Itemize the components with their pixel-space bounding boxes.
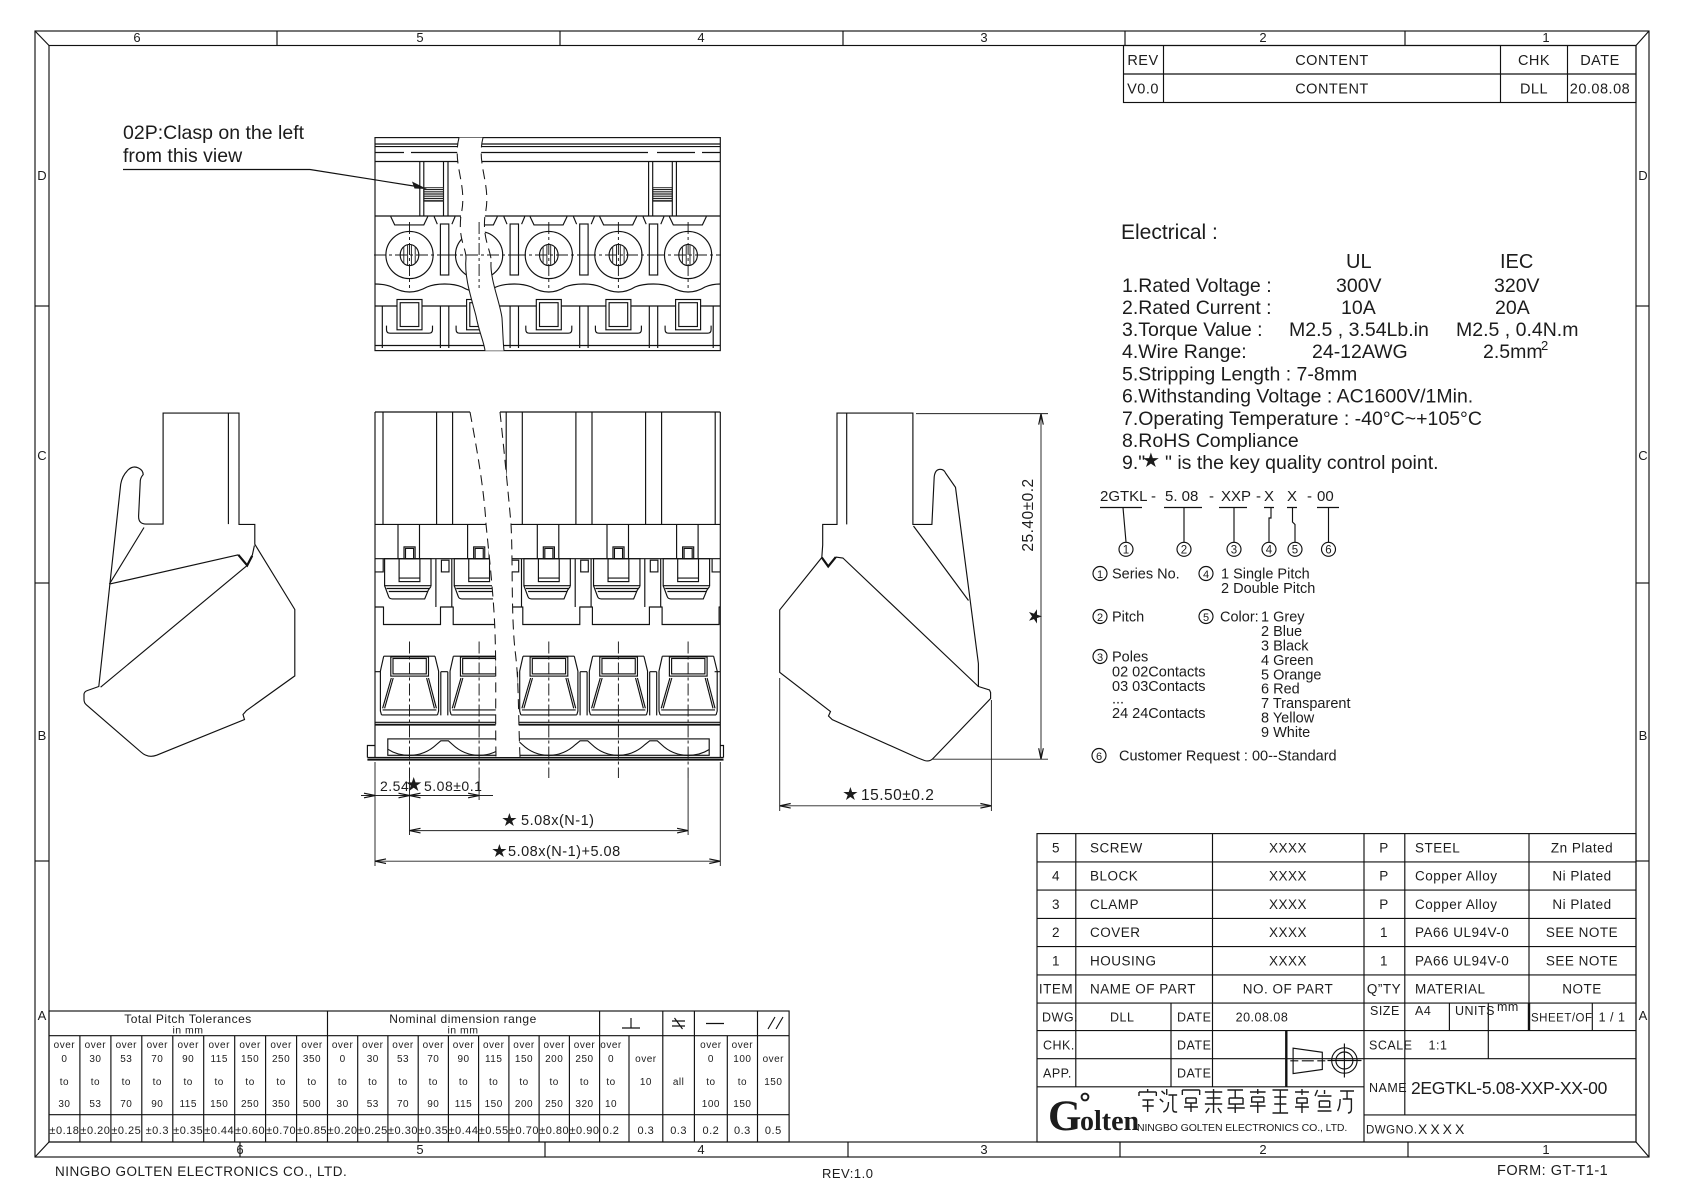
svg-text:CONTENT: CONTENT: [1295, 82, 1369, 98]
svg-text:4: 4: [1266, 545, 1273, 557]
svg-text:over: over: [763, 1054, 785, 1065]
svg-text:DATE: DATE: [1177, 1011, 1211, 1025]
svg-text:Copper Alloy: Copper Alloy: [1415, 897, 1498, 912]
svg-text:B: B: [1639, 728, 1648, 743]
svg-text:6: 6: [133, 30, 140, 45]
svg-text:±0.35: ±0.35: [173, 1125, 203, 1137]
svg-text:300V: 300V: [1336, 275, 1382, 297]
svg-text:0.5: 0.5: [765, 1125, 782, 1137]
svg-text:REV: REV: [1127, 53, 1158, 69]
svg-text:3: 3: [1097, 652, 1103, 664]
svg-text:150: 150: [485, 1099, 503, 1110]
svg-text:4: 4: [697, 1142, 704, 1157]
svg-text:to: to: [122, 1077, 131, 1088]
svg-text:0.3: 0.3: [670, 1125, 687, 1137]
svg-text:to: to: [60, 1077, 69, 1088]
svg-text:115: 115: [210, 1054, 227, 1065]
svg-text:70: 70: [397, 1099, 409, 1110]
svg-text:1:1: 1:1: [1429, 1039, 1448, 1053]
svg-text:150: 150: [515, 1054, 533, 1065]
svg-text:SCREW: SCREW: [1090, 841, 1143, 856]
svg-text:FORM: GT-T1-1: FORM: GT-T1-1: [1497, 1163, 1608, 1179]
svg-text:53: 53: [397, 1054, 409, 1065]
svg-text:to: to: [153, 1077, 162, 1088]
svg-text:1: 1: [1123, 545, 1129, 557]
svg-text:20.08.08: 20.08.08: [1236, 1011, 1289, 1025]
svg-text:to: to: [606, 1077, 615, 1088]
svg-text:over: over: [600, 1040, 622, 1051]
svg-text:150: 150: [210, 1099, 228, 1110]
svg-text:4.Wire Range:: 4.Wire Range:: [1122, 341, 1247, 363]
svg-text:to: to: [398, 1077, 407, 1088]
svg-text:24 24Contacts: 24 24Contacts: [1112, 706, 1206, 722]
svg-text:90: 90: [151, 1099, 163, 1110]
svg-text:1: 1: [1380, 953, 1388, 968]
svg-text:10A: 10A: [1341, 297, 1376, 319]
svg-text:DLL: DLL: [1520, 82, 1548, 98]
svg-text:C: C: [37, 448, 46, 463]
svg-text:to: to: [429, 1077, 438, 1088]
svg-text:5.08x(N-1): 5.08x(N-1): [521, 813, 595, 829]
svg-text:NAME: NAME: [1369, 1081, 1407, 1095]
svg-text:1 / 1: 1 / 1: [1599, 1011, 1626, 1025]
svg-text:over: over: [453, 1040, 475, 1051]
svg-text:2.5mm: 2.5mm: [1483, 341, 1543, 363]
svg-text:1: 1: [1097, 569, 1103, 581]
svg-text:5: 5: [416, 30, 423, 45]
svg-text:to: to: [276, 1077, 285, 1088]
svg-text:UL: UL: [1346, 251, 1372, 273]
svg-text:0: 0: [340, 1054, 346, 1065]
svg-text:20A: 20A: [1495, 297, 1530, 319]
svg-text:to: to: [307, 1077, 316, 1088]
svg-text:all: all: [673, 1077, 685, 1088]
svg-text:XXP: XXP: [1221, 488, 1251, 505]
svg-text:MATERIAL: MATERIAL: [1415, 982, 1486, 997]
svg-text:Poles: Poles: [1112, 650, 1148, 666]
svg-text:70: 70: [427, 1054, 439, 1065]
svg-text:CLAMP: CLAMP: [1090, 897, 1139, 912]
svg-text:320V: 320V: [1494, 275, 1540, 297]
svg-text:250: 250: [575, 1054, 593, 1065]
svg-text:mm: mm: [1497, 1000, 1519, 1014]
svg-text:olten: olten: [1080, 1106, 1140, 1137]
svg-text:Series No.: Series No.: [1112, 567, 1180, 583]
svg-text:SHEET/OF: SHEET/OF: [1531, 1013, 1593, 1025]
svg-text:9.": 9.": [1122, 452, 1145, 474]
svg-text:over: over: [85, 1040, 107, 1051]
svg-text:53: 53: [89, 1099, 101, 1110]
svg-text:5.08±0.1: 5.08±0.1: [424, 778, 482, 794]
svg-text:±0.80: ±0.80: [539, 1125, 569, 1137]
svg-text:5: 5: [416, 1142, 423, 1157]
svg-text:DATE: DATE: [1177, 1039, 1211, 1053]
svg-text:over: over: [483, 1040, 505, 1051]
svg-text:X: X: [1264, 488, 1274, 505]
svg-text:in mm: in mm: [172, 1025, 203, 1037]
svg-text:3: 3: [1231, 545, 1237, 557]
svg-text:from this view: from this view: [123, 145, 243, 167]
svg-text:2: 2: [1181, 545, 1187, 557]
svg-text:03 03Contacts: 03 03Contacts: [1112, 679, 1206, 695]
svg-text:6: 6: [1325, 545, 1331, 557]
svg-text:±0.70: ±0.70: [509, 1125, 539, 1137]
svg-text:COVER: COVER: [1090, 925, 1141, 940]
svg-text:±0.60: ±0.60: [235, 1125, 265, 1137]
svg-text:REV:1.0: REV:1.0: [822, 1166, 873, 1181]
svg-text:SEE NOTE: SEE NOTE: [1546, 925, 1618, 940]
svg-text:2: 2: [1541, 338, 1548, 353]
svg-text:320: 320: [575, 1099, 593, 1110]
svg-text:±0.25: ±0.25: [111, 1125, 141, 1137]
svg-text:200: 200: [515, 1099, 533, 1110]
svg-text:3: 3: [980, 1142, 987, 1157]
svg-text:20.08.08: 20.08.08: [1570, 82, 1630, 98]
svg-text:2: 2: [1052, 925, 1060, 940]
svg-text:NAME OF PART: NAME OF PART: [1090, 982, 1196, 997]
svg-text:6.Withstanding Voltage : AC160: 6.Withstanding Voltage : AC1600V/1Min.: [1122, 386, 1473, 408]
svg-text:1: 1: [1542, 1142, 1549, 1157]
svg-text:over: over: [332, 1040, 354, 1051]
svg-text:±0.44: ±0.44: [449, 1125, 479, 1137]
svg-text:HOUSING: HOUSING: [1090, 953, 1157, 968]
svg-text:150: 150: [733, 1099, 751, 1110]
svg-text:over: over: [239, 1040, 261, 1051]
svg-text:2: 2: [1097, 612, 1103, 624]
svg-text:CONTENT: CONTENT: [1295, 53, 1369, 69]
svg-text:over: over: [732, 1040, 754, 1051]
svg-text:PA66 UL94V-0: PA66 UL94V-0: [1415, 953, 1509, 968]
svg-text:30: 30: [89, 1054, 101, 1065]
svg-text:±0.44: ±0.44: [204, 1125, 234, 1137]
svg-text:P: P: [1379, 869, 1389, 884]
svg-text:Copper Alloy: Copper Alloy: [1415, 869, 1498, 884]
svg-text:150: 150: [241, 1054, 259, 1065]
svg-text:4: 4: [697, 30, 704, 45]
svg-text:70: 70: [151, 1054, 163, 1065]
svg-text:250: 250: [241, 1099, 259, 1110]
svg-text:to: to: [338, 1077, 347, 1088]
svg-text:SEE NOTE: SEE NOTE: [1546, 953, 1618, 968]
svg-text:1: 1: [1380, 925, 1388, 940]
svg-text:XXXX: XXXX: [1269, 953, 1307, 968]
svg-text:over: over: [270, 1040, 292, 1051]
svg-text:A4: A4: [1415, 1004, 1431, 1018]
svg-text:B: B: [38, 728, 47, 743]
svg-text:over: over: [208, 1040, 230, 1051]
svg-text:4: 4: [1203, 569, 1209, 581]
svg-text:±0.35: ±0.35: [418, 1125, 448, 1137]
svg-text:A: A: [1639, 1008, 1648, 1023]
svg-text:V0.0: V0.0: [1127, 82, 1159, 98]
svg-text:2.54: 2.54: [380, 778, 409, 794]
svg-text:XXXX: XXXX: [1269, 869, 1307, 884]
svg-text:CHK: CHK: [1518, 53, 1550, 69]
svg-text:to: to: [459, 1077, 468, 1088]
svg-text:-: -: [1307, 488, 1312, 505]
svg-text:XXXX: XXXX: [1269, 841, 1307, 856]
svg-text:5: 5: [1203, 612, 1209, 624]
svg-text:2GTKL: 2GTKL: [1100, 488, 1148, 505]
svg-text:over: over: [513, 1040, 535, 1051]
svg-text:C: C: [1638, 448, 1647, 463]
svg-text:350: 350: [272, 1099, 290, 1110]
svg-text:5: 5: [1052, 841, 1060, 856]
svg-text:BLOCK: BLOCK: [1090, 869, 1138, 884]
svg-text:over: over: [423, 1040, 445, 1051]
svg-text:IEC: IEC: [1500, 251, 1533, 273]
svg-text:APP.: APP.: [1043, 1067, 1072, 1081]
svg-text:250: 250: [545, 1099, 563, 1110]
svg-text:NO. OF PART: NO. OF PART: [1243, 982, 1334, 997]
svg-text:to: to: [738, 1077, 747, 1088]
svg-text:5.08x(N-1)+5.08: 5.08x(N-1)+5.08: [508, 844, 621, 860]
svg-text:DATE: DATE: [1580, 53, 1620, 69]
svg-text:±0.85: ±0.85: [297, 1125, 327, 1137]
svg-text:250: 250: [272, 1054, 290, 1065]
svg-text:5. 08: 5. 08: [1165, 488, 1198, 505]
svg-text:XXXX: XXXX: [1418, 1121, 1467, 1137]
svg-text:30: 30: [58, 1099, 70, 1110]
svg-text:DWGNO.: DWGNO.: [1366, 1125, 1418, 1137]
svg-text:over: over: [362, 1040, 384, 1051]
svg-text:SIZE: SIZE: [1370, 1004, 1400, 1018]
svg-text:2.Rated Current :: 2.Rated Current :: [1122, 297, 1272, 319]
svg-text:1: 1: [1542, 30, 1549, 45]
svg-text:100: 100: [733, 1054, 751, 1065]
svg-text:-: -: [1151, 488, 1156, 505]
svg-text:M2.5 , 0.4N.m: M2.5 , 0.4N.m: [1456, 319, 1578, 341]
svg-text:over: over: [392, 1040, 414, 1051]
svg-text:350: 350: [303, 1054, 321, 1065]
svg-text:DLL: DLL: [1110, 1011, 1134, 1025]
svg-text:7.Operating Temperature : -40°: 7.Operating Temperature : -40°C~+105°C: [1122, 408, 1482, 430]
svg-text:±0.30: ±0.30: [388, 1125, 418, 1137]
svg-text:-: -: [1256, 488, 1261, 505]
svg-text:53: 53: [367, 1099, 379, 1110]
svg-text:Q”TY: Q”TY: [1367, 982, 1401, 997]
svg-text:G: G: [1048, 1093, 1081, 1140]
svg-text:115: 115: [485, 1054, 502, 1065]
svg-text:6: 6: [1096, 751, 1102, 763]
svg-text:XXXX: XXXX: [1269, 897, 1307, 912]
svg-text:1: 1: [1052, 953, 1060, 968]
svg-text:Ni Plated: Ni Plated: [1552, 897, 1611, 912]
svg-text:D: D: [37, 168, 46, 183]
svg-text:" is the key quality control p: " is the key quality control point.: [1165, 452, 1439, 474]
svg-text:0.3: 0.3: [638, 1125, 655, 1137]
svg-text:NOTE: NOTE: [1562, 982, 1602, 997]
svg-text:over: over: [700, 1040, 722, 1051]
svg-text:0.3: 0.3: [734, 1125, 751, 1137]
svg-text:±0.90: ±0.90: [570, 1125, 600, 1137]
svg-text:9 White: 9 White: [1261, 725, 1310, 741]
svg-text:24-12AWG: 24-12AWG: [1312, 341, 1408, 363]
svg-text:P: P: [1379, 841, 1389, 856]
svg-text:0.2: 0.2: [603, 1125, 620, 1137]
svg-text:115: 115: [455, 1099, 472, 1110]
svg-text:-: -: [1209, 488, 1214, 505]
svg-text:3.Torque Value :: 3.Torque Value :: [1122, 319, 1263, 341]
svg-text:over: over: [635, 1054, 657, 1065]
svg-text:0: 0: [708, 1054, 714, 1065]
svg-text:to: to: [706, 1077, 715, 1088]
svg-text:over: over: [301, 1040, 323, 1051]
svg-text:to: to: [184, 1077, 193, 1088]
svg-text:±0.18: ±0.18: [49, 1125, 79, 1137]
svg-text:150: 150: [764, 1077, 782, 1088]
svg-text:over: over: [543, 1040, 565, 1051]
svg-text:3: 3: [980, 30, 987, 45]
svg-text:200: 200: [545, 1054, 563, 1065]
svg-text:30: 30: [367, 1054, 379, 1065]
svg-text:02P:Clasp on the left: 02P:Clasp on the left: [123, 122, 305, 144]
svg-text:90: 90: [182, 1054, 194, 1065]
svg-text:to: to: [91, 1077, 100, 1088]
svg-text:Electrical :: Electrical :: [1121, 221, 1218, 244]
svg-text:2: 2: [1259, 30, 1266, 45]
svg-text:over: over: [574, 1040, 596, 1051]
svg-text:over: over: [116, 1040, 138, 1051]
svg-text:Color:: Color:: [1220, 610, 1259, 626]
svg-text:115: 115: [179, 1099, 196, 1110]
svg-text:PA66 UL94V-0: PA66 UL94V-0: [1415, 925, 1509, 940]
svg-text:100: 100: [702, 1099, 720, 1110]
svg-text:10: 10: [605, 1099, 617, 1110]
svg-text:8.RoHS Compliance: 8.RoHS Compliance: [1122, 430, 1299, 452]
svg-text:5.Stripping Length : 7-8mm: 5.Stripping Length : 7-8mm: [1122, 364, 1357, 386]
svg-text:6: 6: [236, 1142, 243, 1157]
svg-text:±0.20: ±0.20: [80, 1125, 110, 1137]
svg-text:0.2: 0.2: [703, 1125, 720, 1137]
svg-text:UNITS: UNITS: [1455, 1004, 1495, 1018]
svg-text:0: 0: [608, 1054, 614, 1065]
svg-text:NINGBO GOLTEN ELECTRONICS CO.,: NINGBO GOLTEN ELECTRONICS CO., LTD.: [1137, 1122, 1347, 1134]
svg-text:90: 90: [457, 1054, 469, 1065]
svg-text:Customer Request : 00--Standar: Customer Request : 00--Standard: [1119, 749, 1337, 765]
svg-text:25.40±0.2: 25.40±0.2: [1020, 478, 1037, 551]
svg-text:2 Double Pitch: 2 Double Pitch: [1221, 581, 1315, 597]
svg-text:3: 3: [1052, 897, 1060, 912]
svg-text:Ni Plated: Ni Plated: [1552, 869, 1611, 884]
svg-text:over: over: [54, 1040, 76, 1051]
svg-text:D: D: [1638, 168, 1647, 183]
svg-text:±0.3: ±0.3: [146, 1125, 169, 1137]
svg-text:Zn Plated: Zn Plated: [1551, 841, 1613, 856]
svg-text:to: to: [215, 1077, 224, 1088]
svg-text:over: over: [147, 1040, 169, 1051]
svg-text:to: to: [245, 1077, 254, 1088]
svg-text:SCALE: SCALE: [1369, 1039, 1413, 1053]
svg-text:DATE: DATE: [1177, 1067, 1211, 1081]
svg-text:2EGTKL-5.08-XXP-XX-00: 2EGTKL-5.08-XXP-XX-00: [1411, 1078, 1608, 1098]
svg-text:1.Rated Voltage :: 1.Rated Voltage :: [1122, 275, 1272, 297]
svg-text:to: to: [580, 1077, 589, 1088]
svg-text:±0.70: ±0.70: [266, 1125, 296, 1137]
svg-text:Pitch: Pitch: [1112, 610, 1144, 626]
svg-text:DWG.: DWG.: [1042, 1011, 1078, 1025]
svg-text:X: X: [1287, 488, 1297, 505]
svg-text:NINGBO GOLTEN ELECTRONICS C: NINGBO GOLTEN ELECTRONICS CO., LTD.: [55, 1164, 347, 1179]
svg-text:to: to: [519, 1077, 528, 1088]
svg-text:CHK.: CHK.: [1043, 1039, 1075, 1053]
svg-text:P: P: [1379, 897, 1389, 912]
svg-text:ITEM: ITEM: [1039, 982, 1073, 997]
svg-text:in mm: in mm: [447, 1025, 478, 1037]
svg-text:±0.25: ±0.25: [358, 1125, 388, 1137]
svg-text:70: 70: [120, 1099, 132, 1110]
svg-text:15.50±0.2: 15.50±0.2: [861, 787, 934, 804]
svg-text:5: 5: [1292, 545, 1298, 557]
svg-text:A: A: [38, 1008, 47, 1023]
svg-text:10: 10: [640, 1077, 652, 1088]
svg-text:over: over: [177, 1040, 199, 1051]
svg-text:M2.5 , 3.54Lb.in: M2.5 , 3.54Lb.in: [1289, 319, 1429, 341]
svg-text:±0.55: ±0.55: [479, 1125, 509, 1137]
svg-text:30: 30: [337, 1099, 349, 1110]
svg-text:STEEL: STEEL: [1415, 841, 1460, 856]
svg-text:to: to: [489, 1077, 498, 1088]
svg-text:XXXX: XXXX: [1269, 925, 1307, 940]
svg-text:500: 500: [303, 1099, 321, 1110]
svg-text:2: 2: [1259, 1142, 1266, 1157]
svg-text:90: 90: [427, 1099, 439, 1110]
svg-text:00: 00: [1317, 488, 1334, 505]
svg-text:±0.20: ±0.20: [328, 1125, 358, 1137]
svg-text:4: 4: [1052, 869, 1060, 884]
svg-text:53: 53: [120, 1054, 132, 1065]
svg-text:to: to: [550, 1077, 559, 1088]
svg-text:0: 0: [61, 1054, 67, 1065]
svg-text:to: to: [368, 1077, 377, 1088]
